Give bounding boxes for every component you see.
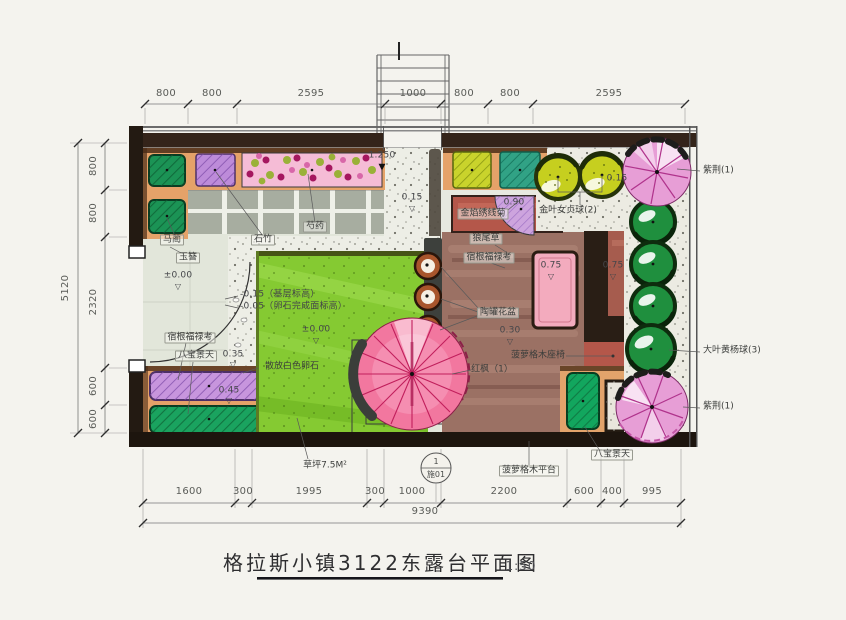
level-strip-b: 0.45 xyxy=(219,387,240,396)
label-lawn-area: 草坪7.5M² xyxy=(303,462,347,471)
redbud-tree-top xyxy=(623,138,691,206)
level-pebble-note: -0.05（卵石完成面标高） xyxy=(240,303,347,312)
plan-sheet: 800 800 2595 1000 800 800 2595 800 800 2… xyxy=(0,0,846,620)
level-triangle-icon: ▽ xyxy=(610,273,616,281)
level-bench-a: 0.75 xyxy=(541,262,562,271)
level-terrace-top: 0.15 xyxy=(402,194,423,203)
planter-beds-top-right xyxy=(443,147,547,190)
level-triangle-icon: ▽ xyxy=(226,397,232,405)
dim-top-1: 800 xyxy=(202,89,222,99)
dim-bottom-5: 2200 xyxy=(491,487,518,497)
label-pots: 陶罐花盆 xyxy=(477,308,519,319)
dim-top-0: 800 xyxy=(156,89,176,99)
dim-top-4: 800 xyxy=(454,89,474,99)
dim-bottom-total: 9390 xyxy=(412,507,439,517)
dim-top-6: 2595 xyxy=(596,89,623,99)
label-fountain-grass: 狼尾草 xyxy=(469,234,502,245)
level-triangle-icon: ▽ xyxy=(409,205,415,213)
dim-bottom-7: 400 xyxy=(602,487,622,497)
label-redbud-bottom: 紫荆(1) xyxy=(703,403,734,412)
dim-bottom-2: 1995 xyxy=(296,487,323,497)
level-deck: 0.30 xyxy=(500,327,521,336)
dim-bottom-6: 600 xyxy=(574,487,594,497)
label-yu-zan: 玉簪 xyxy=(176,253,200,264)
level-triangle-icon: ▽ xyxy=(230,361,236,369)
dim-left-total: 5120 xyxy=(61,275,71,302)
dim-bottom-3: 300 xyxy=(365,487,385,497)
label-boxwood: 大叶黄杨球(3) xyxy=(703,347,761,356)
drawing-title: 格拉斯小镇3122东露台平面图 xyxy=(223,553,539,573)
label-privet: 金叶女贞球(2) xyxy=(539,207,597,216)
dim-left-4: 600 xyxy=(89,409,99,429)
level-triangle-icon: ▽ xyxy=(175,283,181,291)
level-terrace-right: 0.15 xyxy=(607,175,628,184)
label-shi-zhu: 石竹 xyxy=(251,235,275,246)
level-bench-b: 0.75 xyxy=(603,262,624,271)
level-triangle-icon: ▽ xyxy=(507,338,513,346)
level-fan: 0.90 xyxy=(504,199,525,208)
level-strip-a: 0.35 xyxy=(223,351,244,360)
dim-left-2: 2320 xyxy=(89,289,99,316)
level-court: ±0.00 xyxy=(164,272,193,281)
dim-bottom-4: 1000 xyxy=(399,487,426,497)
level-base-note: -0.15（基层标高） xyxy=(240,291,320,300)
label-ma-lin: 马蔺 xyxy=(160,235,184,246)
redbud-tree-bottom xyxy=(616,371,688,443)
level-triangle-icon: ▽ xyxy=(313,337,319,345)
label-deck: 菠萝格木平台 xyxy=(499,466,559,477)
label-sedum-left: 八宝景天 xyxy=(175,351,217,362)
dim-top-2: 2595 xyxy=(298,89,325,99)
level-stair: 1.250 xyxy=(369,152,396,161)
label-redbud-top: 紫荆(1) xyxy=(703,167,734,176)
label-pebbles: 散放白色卵石 xyxy=(265,363,319,372)
dim-bottom-8: 995 xyxy=(642,487,662,497)
dim-bottom-0: 1600 xyxy=(176,487,203,497)
section-marker-sheet: 施01 xyxy=(427,471,445,479)
label-bench: 菠萝格木座椅 xyxy=(511,352,565,361)
label-sedum-right: 八宝景天 xyxy=(591,450,633,461)
dim-left-3: 600 xyxy=(89,376,99,396)
level-filled-triangle-icon: ▼ xyxy=(379,164,386,173)
section-marker-number: 1 xyxy=(433,458,438,466)
planter-beds-bottom-left xyxy=(143,366,275,436)
dim-bottom-1: 300 xyxy=(233,487,253,497)
label-spirea: 金焰绣线菊 xyxy=(457,209,508,220)
dim-top-5: 800 xyxy=(500,89,520,99)
level-triangle-icon: ▽ xyxy=(548,273,554,281)
label-phlox-left: 宿根福禄考 xyxy=(164,333,215,344)
dim-left-0: 800 xyxy=(89,156,99,176)
label-phlox-right: 宿根福禄考 xyxy=(463,253,514,264)
dim-top-3: 1000 xyxy=(400,89,427,99)
drawing-scale: 1:50 xyxy=(506,560,537,572)
title-underline xyxy=(257,577,503,580)
level-lawn: ±0.00 xyxy=(302,326,331,335)
label-maple: 红枫（1） xyxy=(471,366,513,375)
label-shao-yao: 芍药 xyxy=(303,222,327,233)
dim-left-1: 800 xyxy=(89,203,99,223)
